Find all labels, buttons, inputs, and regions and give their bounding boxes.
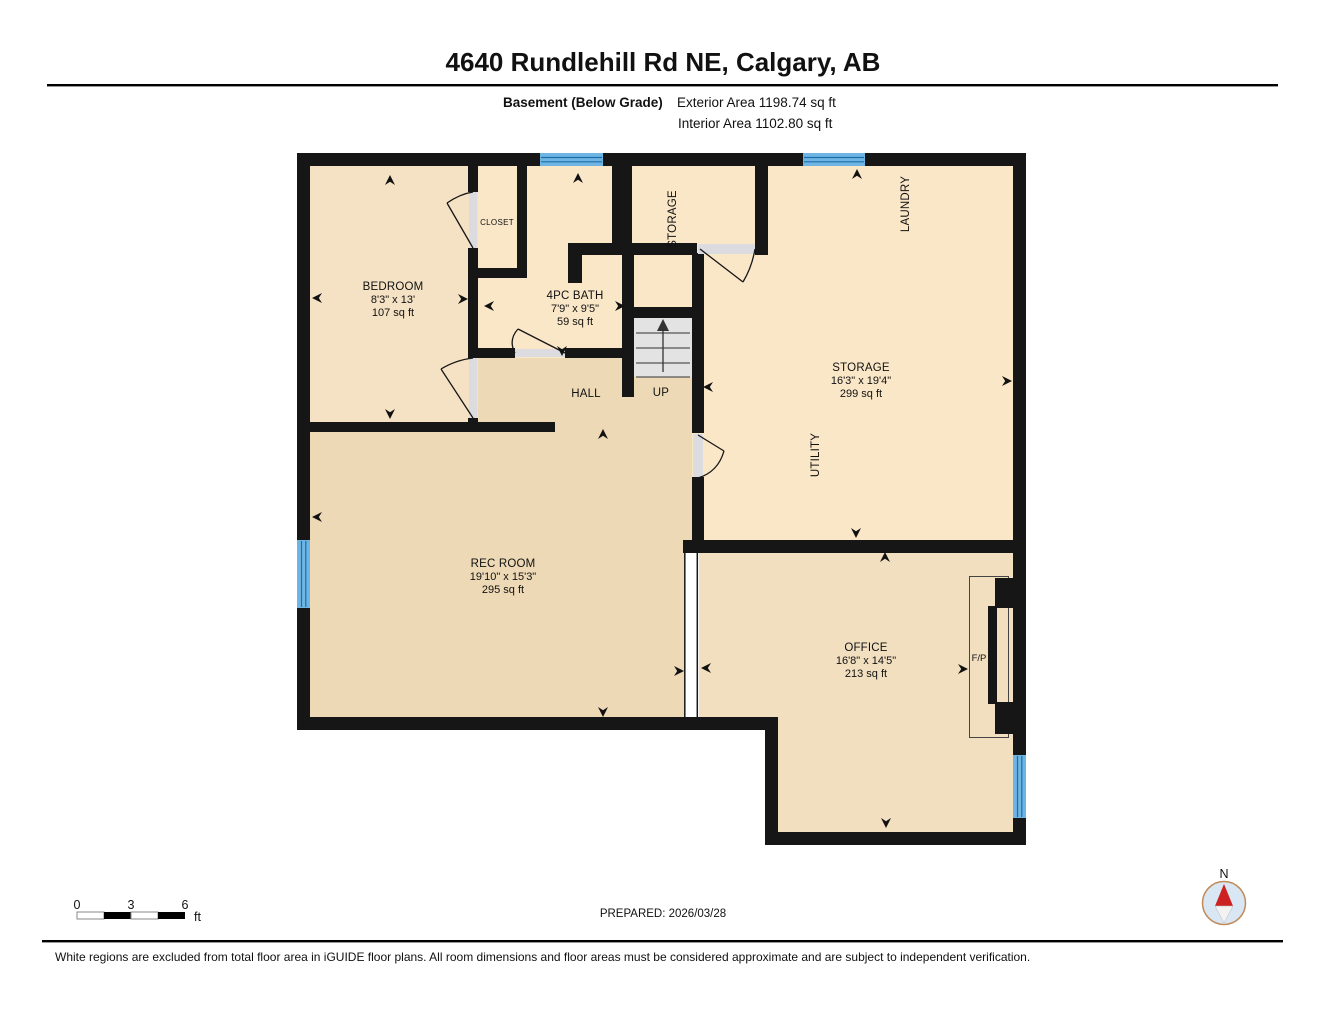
cased-opening (684, 553, 699, 717)
wall-tub-jog-v (568, 243, 582, 283)
rec-room-dims: 19'10" x 15'3" (470, 571, 537, 583)
storage-area: 299 sq ft (840, 388, 882, 400)
scale-tick-3: 3 (128, 898, 135, 912)
bath-label: 4PC BATH (547, 290, 604, 302)
storage-dims: 16'3" x 19'4" (831, 375, 891, 387)
utility-label: UTILITY (810, 433, 822, 477)
window-top-left (540, 153, 603, 166)
disclaimer-text: White regions are excluded from total fl… (55, 950, 1030, 964)
rec-room-label: REC ROOM (471, 558, 536, 570)
opening-closet (469, 192, 477, 248)
scale-unit: ft (194, 910, 201, 924)
wall-storage-small-corner (755, 243, 768, 255)
opening-storage-small (698, 244, 755, 254)
compass: N (1203, 867, 1246, 925)
floor-plan-canvas: 4640 Rundlehill Rd NE, Calgary, AB Basem… (0, 0, 1325, 1024)
wall-bath-east (612, 166, 632, 255)
floor-office (699, 553, 1013, 832)
laundry-label: LAUNDRY (900, 176, 912, 232)
wall-ext-bottom (765, 832, 1026, 845)
bath-dims: 7'9" x 9'5" (551, 303, 599, 315)
wall-closet-east (517, 166, 527, 273)
wall-left (297, 153, 310, 730)
scale-seg-2 (104, 912, 131, 919)
wall-bedroom-east-b (468, 248, 478, 358)
bedroom-dims: 8'3" x 13' (371, 294, 415, 306)
wall-closet-south (468, 268, 527, 278)
floor-label: Basement (Below Grade) (503, 95, 663, 110)
rec-room-area: 295 sq ft (482, 584, 524, 596)
wall-right (1013, 153, 1026, 845)
interior-area: Interior Area 1102.80 sq ft (678, 116, 833, 131)
fireplace-hearth-top (995, 578, 1013, 608)
bedroom-area: 107 sq ft (372, 307, 414, 319)
wall-stair-west (622, 255, 634, 397)
opening-bedroom (469, 358, 477, 418)
wall-storage-west-a (692, 253, 704, 433)
wall-bottom-left (297, 717, 778, 730)
wall-stair-head (634, 307, 692, 318)
fireplace-hearth-mid (988, 606, 997, 704)
wall-bath-south-a (478, 348, 515, 358)
scale-tick-6: 6 (182, 898, 189, 912)
bath-area: 59 sq ft (557, 316, 593, 328)
office-dims: 16'8" x 14'5" (836, 655, 896, 667)
wall-bath-south-b (565, 348, 622, 358)
office-area: 213 sq ft (845, 668, 887, 680)
exterior-area: Exterior Area 1198.74 sq ft (677, 95, 836, 110)
prepared-date: PREPARED: 2026/03/28 (600, 908, 726, 920)
floor-plan-page: 4640 Rundlehill Rd NE, Calgary, AB Basem… (0, 0, 1325, 1024)
fireplace-label: F/P (972, 653, 987, 664)
office-label: OFFICE (844, 642, 887, 654)
scale-seg-4 (158, 912, 185, 919)
window-left (297, 540, 310, 608)
opening-utility (693, 434, 703, 477)
opening-bath (515, 349, 565, 357)
wall-bedroom-south (303, 422, 555, 432)
compass-north-label: N (1219, 867, 1228, 881)
scale-bar: 0 3 6 ft (74, 898, 202, 924)
scale-seg-3 (131, 912, 158, 919)
window-top-right (803, 153, 865, 166)
closet-label: CLOSET (480, 218, 514, 227)
wall-storage-small-east (755, 166, 768, 255)
up-label: UP (653, 387, 670, 399)
bedroom-label: BEDROOM (363, 281, 424, 293)
scale-seg-1 (77, 912, 104, 919)
footer-divider (42, 940, 1283, 942)
page-title: 4640 Rundlehill Rd NE, Calgary, AB (446, 47, 881, 77)
storage-small-label: STORAGE (667, 190, 679, 248)
header-divider (47, 84, 1278, 86)
scale-tick-0: 0 (74, 898, 81, 912)
wall-top (297, 153, 1026, 166)
wall-storage-small-south (630, 243, 697, 255)
staircase (634, 318, 692, 377)
storage-label: STORAGE (832, 362, 890, 374)
window-right (1013, 755, 1026, 818)
wall-ext-left (765, 717, 778, 845)
wall-bedroom-east-a (468, 166, 478, 192)
wall-office-north (683, 540, 1013, 553)
fireplace-hearth-bottom (995, 702, 1013, 734)
hall-label: HALL (571, 388, 601, 400)
